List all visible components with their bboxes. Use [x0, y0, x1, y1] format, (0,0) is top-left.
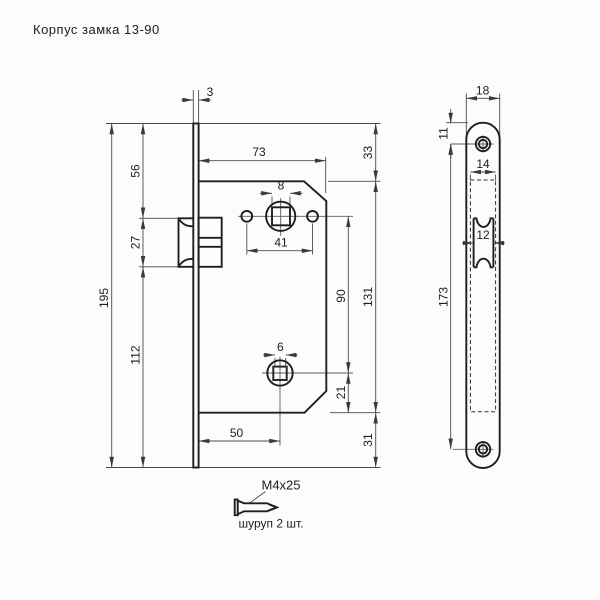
dim-label-173: 173 — [437, 287, 451, 307]
screw-tip-chevron — [270, 505, 277, 511]
latch-cutout — [474, 218, 494, 267]
dim-label-18: 18 — [476, 84, 490, 98]
extension-line — [193, 90, 198, 124]
dim-label-90: 90 — [334, 289, 348, 303]
dim-131: 131 — [361, 181, 376, 412]
latch-bolt-front-bottom — [474, 259, 494, 268]
main-view-lock-body: 195 56 27 112 3 73 8 41 — [97, 85, 381, 468]
screw-head — [235, 500, 238, 516]
dim-label-112: 112 — [129, 345, 143, 364]
dim-31: 31 — [361, 413, 376, 468]
dim-11: 11 — [437, 109, 451, 159]
dim-18: 18 — [466, 84, 499, 99]
screw-callout: M4x25 шуруп 2 шт. — [235, 478, 304, 531]
faceplate-edge-view — [193, 124, 198, 468]
dim-label-31: 31 — [361, 433, 375, 447]
dim-label-12: 12 — [476, 228, 490, 242]
dim-56: 56 — [129, 124, 144, 219]
dim-6: 6 — [263, 340, 298, 355]
dim-label-73: 73 — [252, 145, 266, 159]
face-view-faceplate: 18 11 14 12 173 — [437, 84, 506, 469]
dim-label-27: 27 — [129, 236, 143, 250]
dim-27: 27 — [129, 218, 144, 266]
dim-73: 73 — [199, 145, 326, 161]
dim-14: 14 — [470, 157, 495, 172]
dim-label-33: 33 — [361, 146, 375, 160]
dim-173: 173 — [437, 144, 451, 449]
latch-bolt-bevel-arcs — [179, 220, 193, 266]
latch-housing — [199, 218, 222, 267]
dim-195: 195 — [97, 124, 112, 468]
dim-41: 41 — [247, 236, 313, 251]
dim-90: 90 — [334, 216, 348, 373]
leader-line — [250, 492, 266, 503]
dim-label-56: 56 — [129, 164, 143, 178]
screw-quantity-note: шуруп 2 шт. — [239, 517, 304, 531]
dim-label-195: 195 — [97, 288, 111, 308]
dim-label-50: 50 — [230, 426, 244, 440]
dim-label-131: 131 — [361, 287, 375, 307]
dim-112: 112 — [129, 267, 144, 468]
dim-label-21: 21 — [334, 386, 348, 400]
latch-housing-lines — [199, 238, 222, 247]
dim-50: 50 — [199, 426, 280, 441]
technical-drawing-canvas: 195 56 27 112 3 73 8 41 — [0, 0, 600, 600]
dim-33: 33 — [361, 124, 376, 182]
screw-body — [238, 501, 277, 515]
dim-12: 12 — [462, 228, 505, 243]
dim-label-11: 11 — [437, 127, 451, 140]
hidden-body-outline — [470, 180, 495, 412]
extension-line — [466, 94, 499, 141]
dim-label-14: 14 — [476, 157, 490, 171]
screw-size-label: M4x25 — [261, 478, 300, 493]
faceplate-outline — [466, 123, 499, 468]
latch-bolt-front-top — [474, 218, 494, 227]
dim-label-3: 3 — [207, 85, 214, 99]
dim-label-41: 41 — [274, 236, 288, 250]
dim-21: 21 — [334, 373, 348, 413]
dim-label-6: 6 — [277, 340, 284, 354]
dim-3: 3 — [181, 85, 214, 100]
